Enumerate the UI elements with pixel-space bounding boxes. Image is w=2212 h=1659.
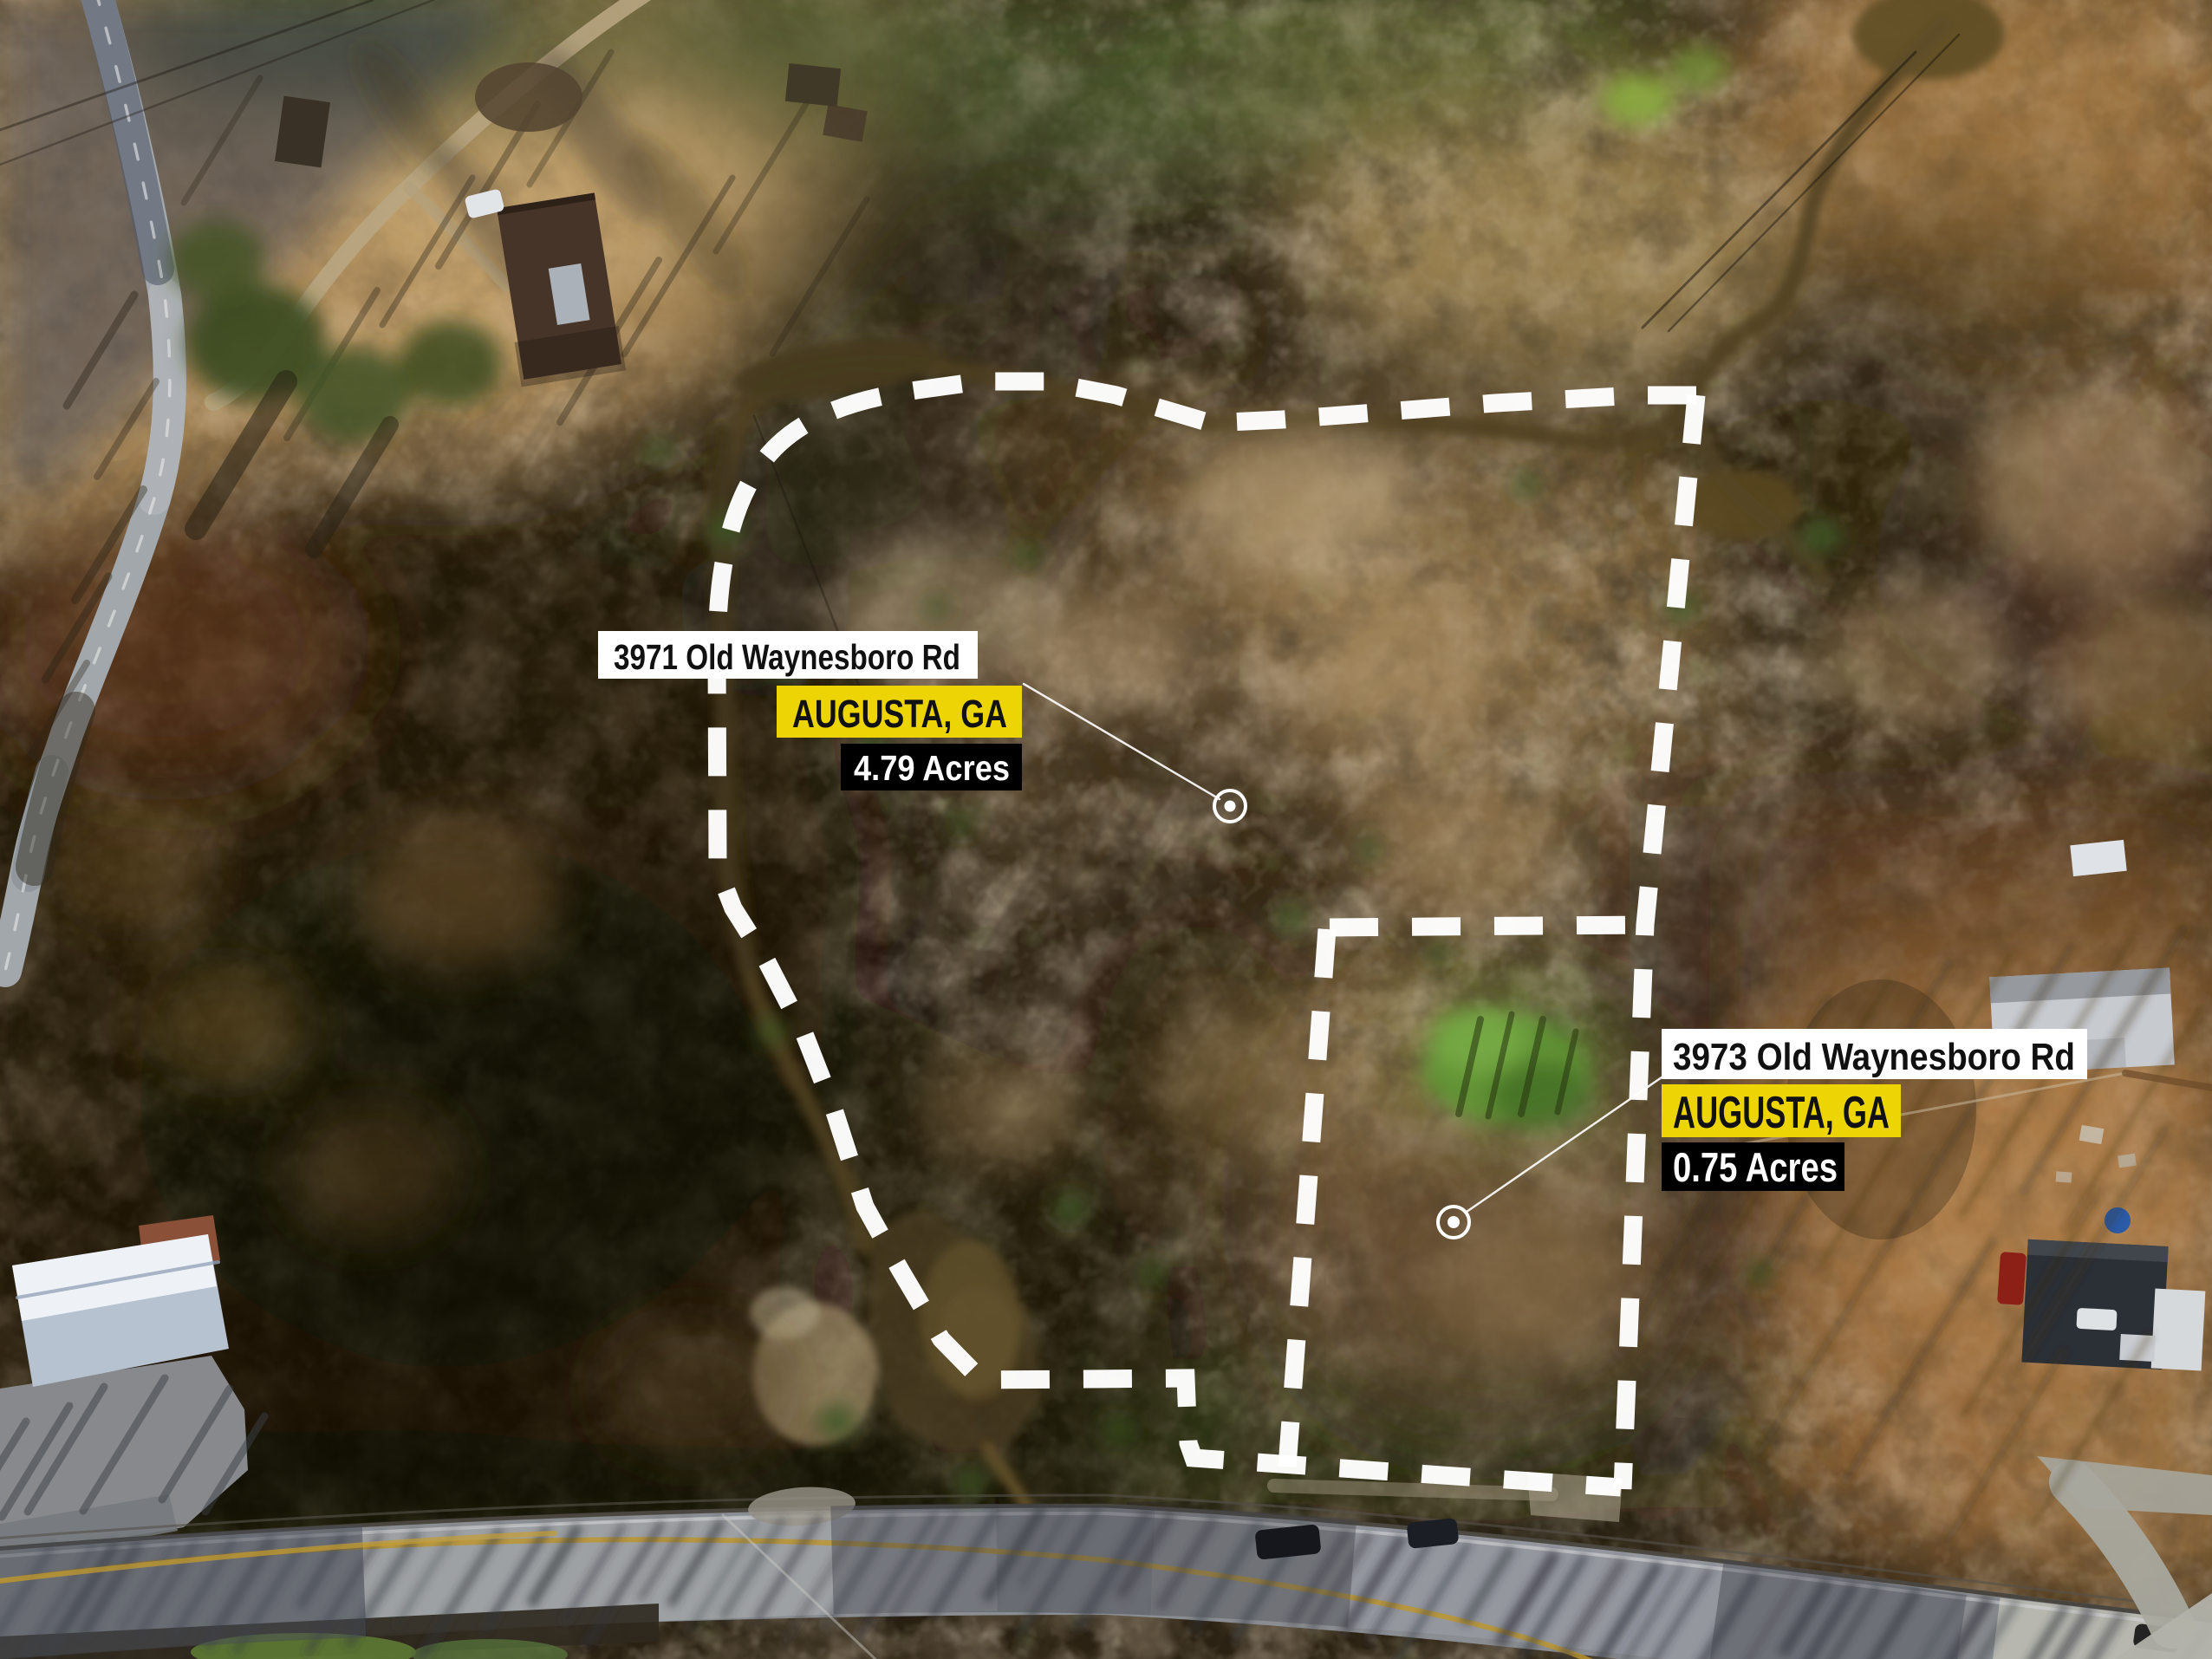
svg-text:4.79 Acres: 4.79 Acres — [854, 748, 1010, 788]
svg-text:3973 Old Waynesboro Rd: 3973 Old Waynesboro Rd — [1673, 1036, 2075, 1078]
svg-text:AUGUSTA, GA: AUGUSTA, GA — [792, 692, 1007, 736]
svg-text:3971 Old Waynesboro Rd: 3971 Old Waynesboro Rd — [614, 637, 960, 677]
svg-text:AUGUSTA, GA: AUGUSTA, GA — [1673, 1088, 1890, 1138]
svg-text:0.75 Acres: 0.75 Acres — [1673, 1144, 1838, 1190]
